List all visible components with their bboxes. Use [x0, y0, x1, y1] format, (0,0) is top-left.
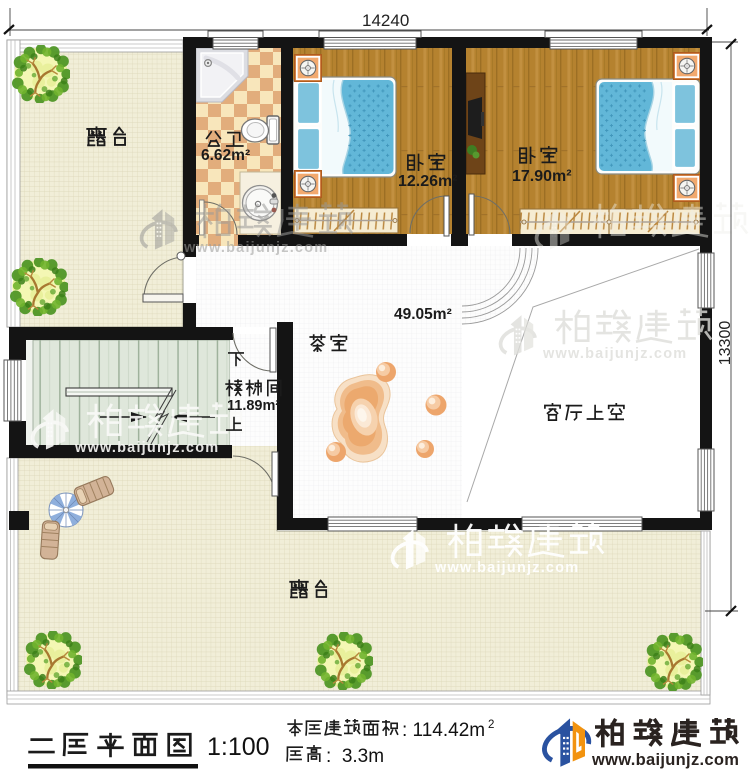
svg-text:www.baijunjz.com: www.baijunjz.com	[74, 440, 219, 456]
svg-text:12.26m²: 12.26m²	[398, 173, 458, 190]
svg-text:11.89m²: 11.89m²	[227, 398, 280, 414]
svg-text:2: 2	[488, 719, 494, 731]
svg-text:14240: 14240	[362, 11, 409, 30]
svg-text:www.baijunjz.com: www.baijunjz.com	[542, 346, 687, 362]
svg-text:www.baijunjz.com: www.baijunjz.com	[183, 240, 328, 256]
svg-text:www.baijunjz.com: www.baijunjz.com	[591, 751, 739, 769]
svg-text:1:100: 1:100	[207, 733, 270, 761]
svg-text:49.05m²: 49.05m²	[394, 306, 452, 323]
svg-text:: 114.42m: : 114.42m	[402, 720, 485, 741]
svg-text:6.62m²: 6.62m²	[201, 147, 250, 164]
svg-text:17.90m²: 17.90m²	[512, 168, 572, 185]
svg-text:13300: 13300	[717, 321, 734, 366]
svg-text:: 3.3m: : 3.3m	[326, 746, 384, 767]
svg-text:www.baijunjz.com: www.baijunjz.com	[434, 560, 579, 576]
